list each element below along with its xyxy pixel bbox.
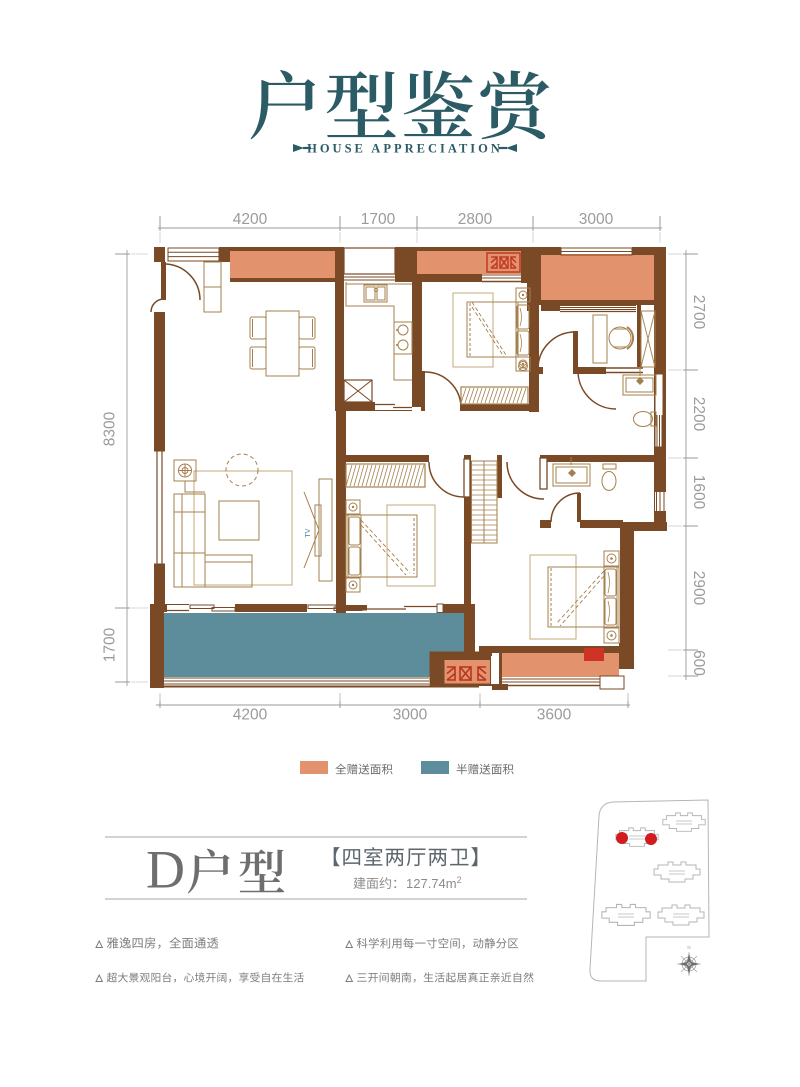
svg-text:600: 600 — [690, 650, 707, 676]
svg-text:D: D — [146, 840, 185, 900]
svg-text:1600: 1600 — [690, 475, 707, 510]
svg-text:2900: 2900 — [690, 571, 707, 606]
svg-text:HOUSE APPRECIATION: HOUSE APPRECIATION — [307, 142, 503, 156]
svg-text:3000: 3000 — [579, 211, 614, 228]
svg-text:2800: 2800 — [458, 211, 493, 228]
svg-text:127.74m2: 127.74m2 — [406, 875, 462, 891]
svg-text:4200: 4200 — [233, 211, 268, 228]
svg-text:3600: 3600 — [537, 707, 572, 724]
svg-text:N: N — [687, 945, 690, 950]
svg-text:1700: 1700 — [102, 627, 119, 662]
svg-text:2200: 2200 — [690, 397, 707, 432]
svg-text:8300: 8300 — [102, 411, 119, 446]
svg-text:3000: 3000 — [393, 707, 428, 724]
svg-text:1700: 1700 — [361, 211, 396, 228]
svg-text:TV: TV — [305, 528, 312, 537]
svg-text:2700: 2700 — [690, 295, 707, 330]
svg-text:4200: 4200 — [233, 707, 268, 724]
